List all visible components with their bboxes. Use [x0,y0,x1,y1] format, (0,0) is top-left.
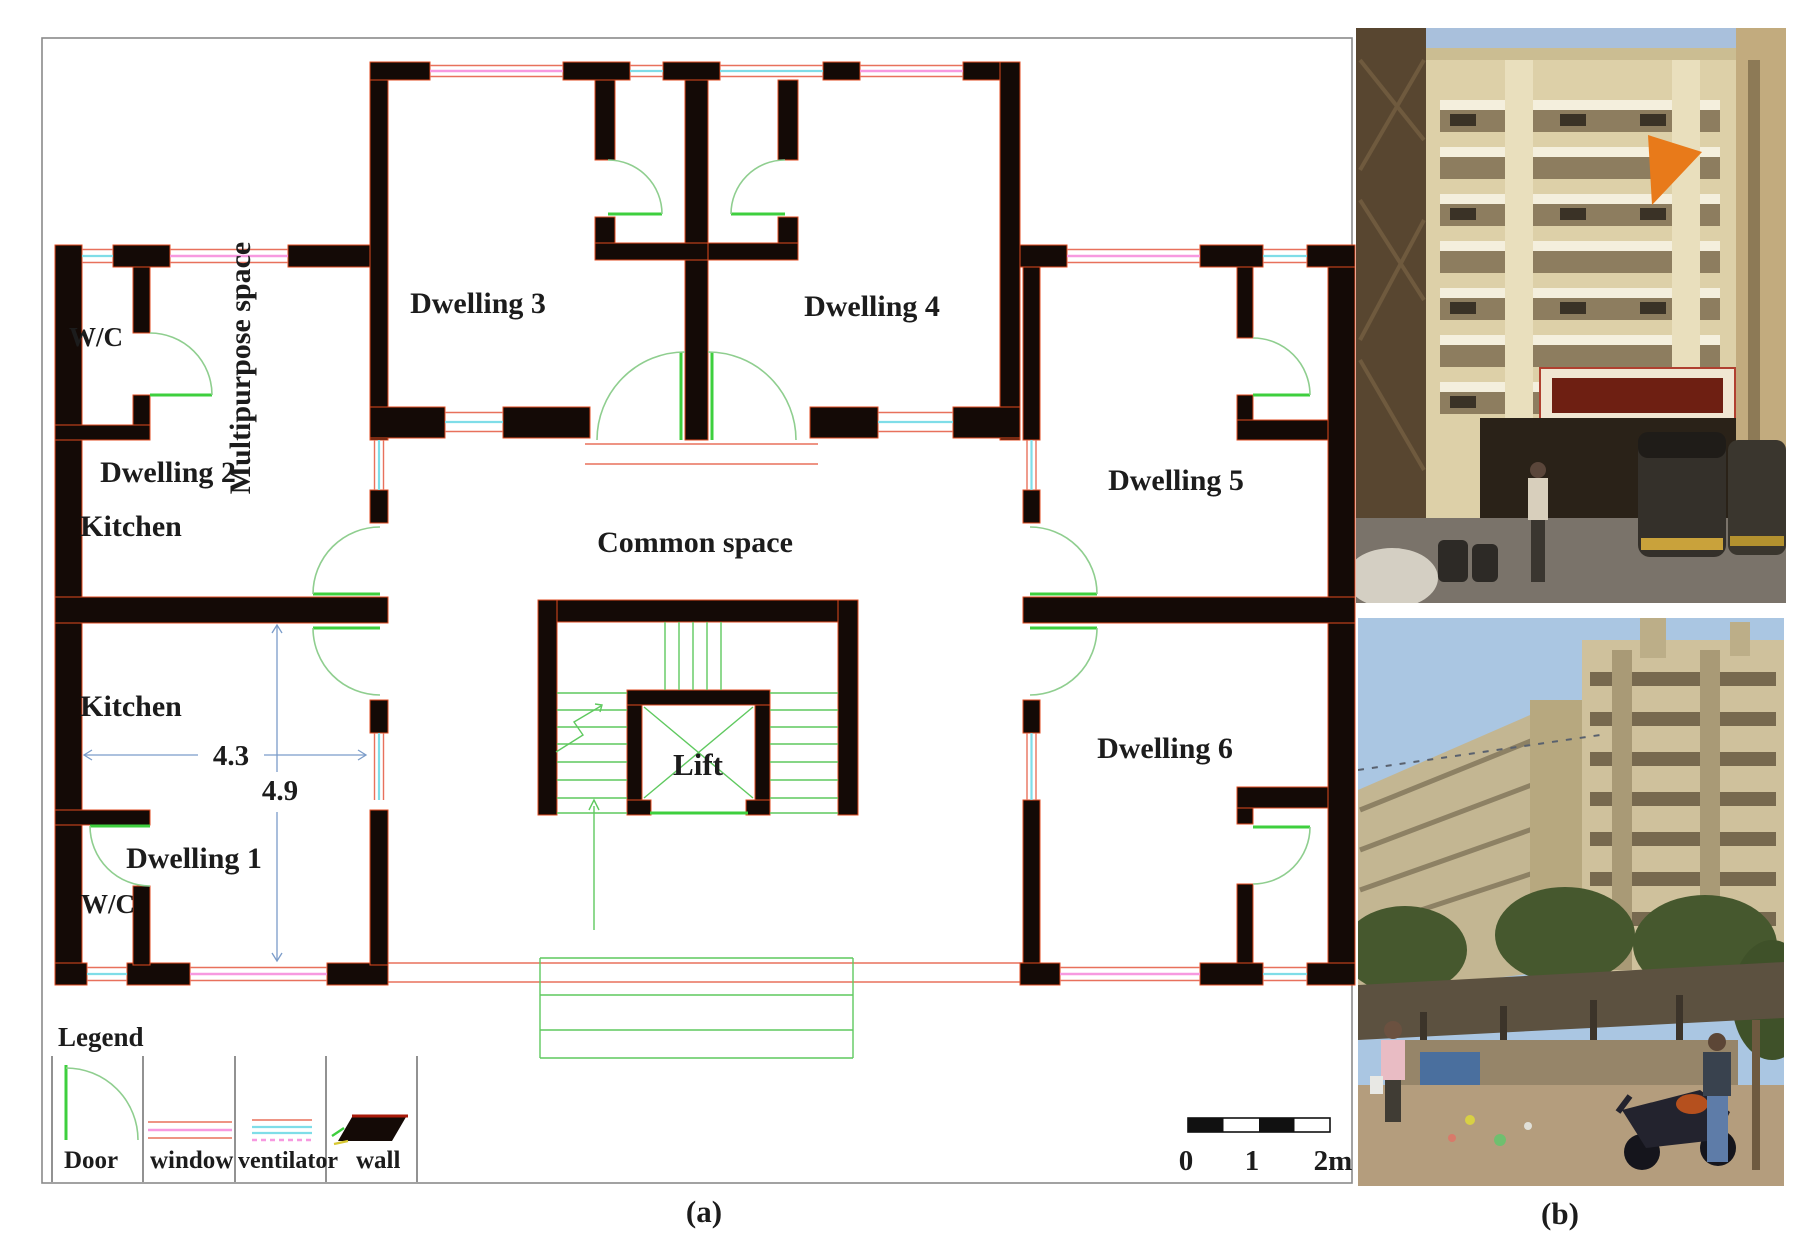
scale-tick-1: 1 [1245,1145,1260,1177]
floor-plan-panel: 4.3 4.9 W/C Dwelling 2 Kitchen Multipurp… [42,38,1355,1229]
room-label-kitchen-d2: Kitchen [80,510,182,543]
tarp-covered-object [1346,548,1438,608]
dim-width-label: 4.3 [213,740,249,772]
legend-ventilator-label: ventilator [238,1148,338,1174]
room-label-common-space: Common space [597,526,793,559]
figure-apartment-plan-and-photos: 4.3 4.9 W/C Dwelling 2 Kitchen Multipurp… [0,0,1814,1239]
auto-rickshaws [1638,432,1786,557]
room-label-dwelling2: Dwelling 2 [100,456,236,489]
room-label-dwelling5: Dwelling 5 [1108,464,1244,497]
photo-building-front [1346,28,1786,608]
photo-street-market [1343,618,1812,1186]
caption-a: (a) [686,1194,722,1229]
caption-b: (b) [1541,1196,1579,1231]
room-label-dwelling1: Dwelling 1 [126,842,262,875]
parked-scooters [1438,540,1498,582]
room-label-kitchen-d1: Kitchen [80,690,182,723]
dim-height-label: 4.9 [262,775,298,807]
room-label-wc-top: W/C [69,322,123,352]
scale-tick-0: 0 [1179,1145,1194,1177]
scale-tick-2m: 2m [1314,1145,1353,1177]
room-label-dwelling4: Dwelling 4 [804,290,940,323]
room-label-lift: Lift [673,747,724,782]
legend-window-label: window [150,1147,233,1174]
room-label-dwelling6: Dwelling 6 [1097,732,1233,765]
room-label-wc-bottom: W/C [81,889,135,919]
room-label-dwelling3: Dwelling 3 [410,287,546,320]
legend-wall-label: wall [356,1147,401,1174]
pedestrian [1528,462,1548,582]
legend-title: Legend [58,1022,144,1052]
person-blue-jeans [1703,1033,1731,1162]
room-label-multipurpose: Multipurpose space [224,242,257,495]
tree-trunk [1752,1020,1760,1170]
legend-door-label: Door [64,1147,118,1174]
